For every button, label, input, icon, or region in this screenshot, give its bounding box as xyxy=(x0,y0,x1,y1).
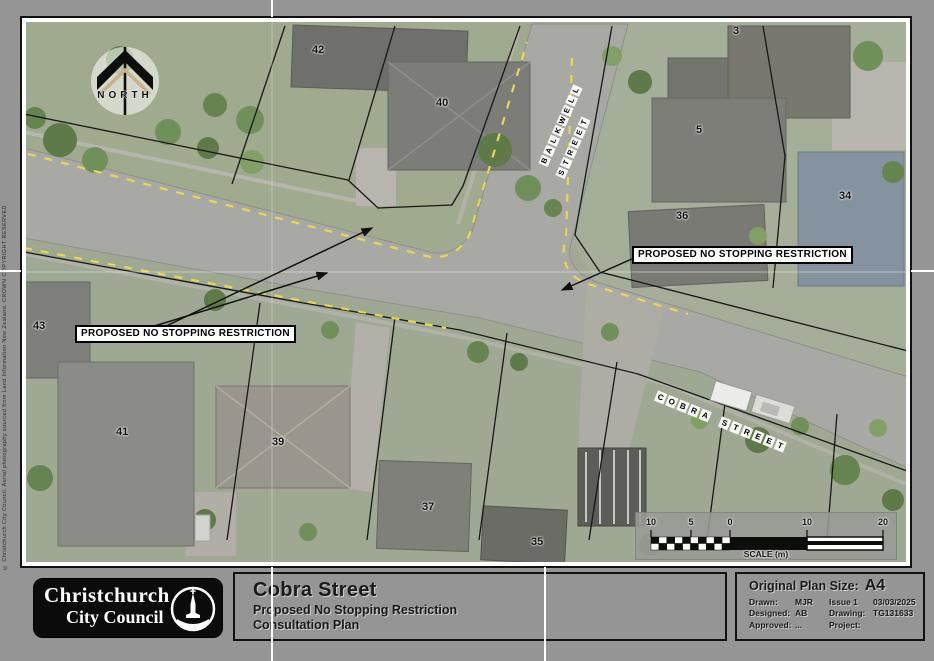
no-stopping-label-left: PROPOSED NO STOPPING RESTRICTION xyxy=(75,325,296,343)
logo-line1: Christchurch xyxy=(44,585,170,606)
issue-label: Issue 1 xyxy=(829,597,873,608)
drawn-value: MJR xyxy=(795,597,829,608)
plan-subtitle-2: Consultation Plan xyxy=(253,618,725,632)
reg-mark-left xyxy=(0,270,21,272)
no-stopping-label-right: PROPOSED NO STOPPING RESTRICTION xyxy=(632,246,853,264)
house-number-37: 37 xyxy=(422,501,434,513)
house-number-34: 34 xyxy=(839,190,851,202)
drawing-label: Drawing: xyxy=(829,608,873,619)
drawn-label: Drawn: xyxy=(749,597,795,608)
reg-mark-bottom-1 xyxy=(271,567,273,661)
reg-mark-top xyxy=(271,0,273,17)
house-number-41: 41 xyxy=(116,426,128,438)
designed-label: Designed: xyxy=(749,608,795,619)
house-number-43: 43 xyxy=(33,320,45,332)
plan-size-value: A4 xyxy=(865,577,885,595)
designed-value: AB xyxy=(795,608,829,619)
issue-date: 03/03/2025 xyxy=(873,597,917,608)
plan-subtitle-1: Proposed No Stopping Restriction xyxy=(253,603,725,617)
reg-mark-bottom-2 xyxy=(544,567,546,661)
north-text: NORTH xyxy=(97,90,153,101)
council-logo: Christchurch City Council xyxy=(33,578,223,638)
house-number-36: 36 xyxy=(676,210,688,222)
scale-bar: 10501020 SCALE (m) xyxy=(635,512,897,560)
plan-title: Cobra Street xyxy=(253,579,725,602)
house-number-39: 39 xyxy=(272,436,284,448)
approved-value: ... xyxy=(795,620,829,631)
reg-mark-right xyxy=(911,270,934,272)
house-number-42: 42 xyxy=(312,44,324,56)
info-block: Original Plan Size: A4 Drawn: MJR Issue … xyxy=(735,572,925,641)
copyright-text: © Christchurch City Council. Aerial phot… xyxy=(2,205,16,570)
project-value xyxy=(873,620,917,631)
plan-sheet: © Christchurch City Council. Aerial phot… xyxy=(0,0,934,661)
project-label: Project: xyxy=(829,620,873,631)
drawing-value: TG131633 xyxy=(873,608,917,619)
scale-caption: SCALE (m) xyxy=(636,549,896,559)
house-number-3: 3 xyxy=(733,25,739,37)
north-arrow: NORTH xyxy=(90,46,160,121)
cathedral-icon xyxy=(169,585,217,638)
title-block: Cobra Street Proposed No Stopping Restri… xyxy=(233,572,727,641)
approved-label: Approved: xyxy=(749,620,795,631)
logo-line2: City Council xyxy=(66,608,170,626)
plan-size-label: Original Plan Size: xyxy=(749,579,859,593)
house-number-5: 5 xyxy=(696,124,702,136)
house-number-35: 35 xyxy=(531,536,543,548)
house-number-40: 40 xyxy=(436,97,448,109)
